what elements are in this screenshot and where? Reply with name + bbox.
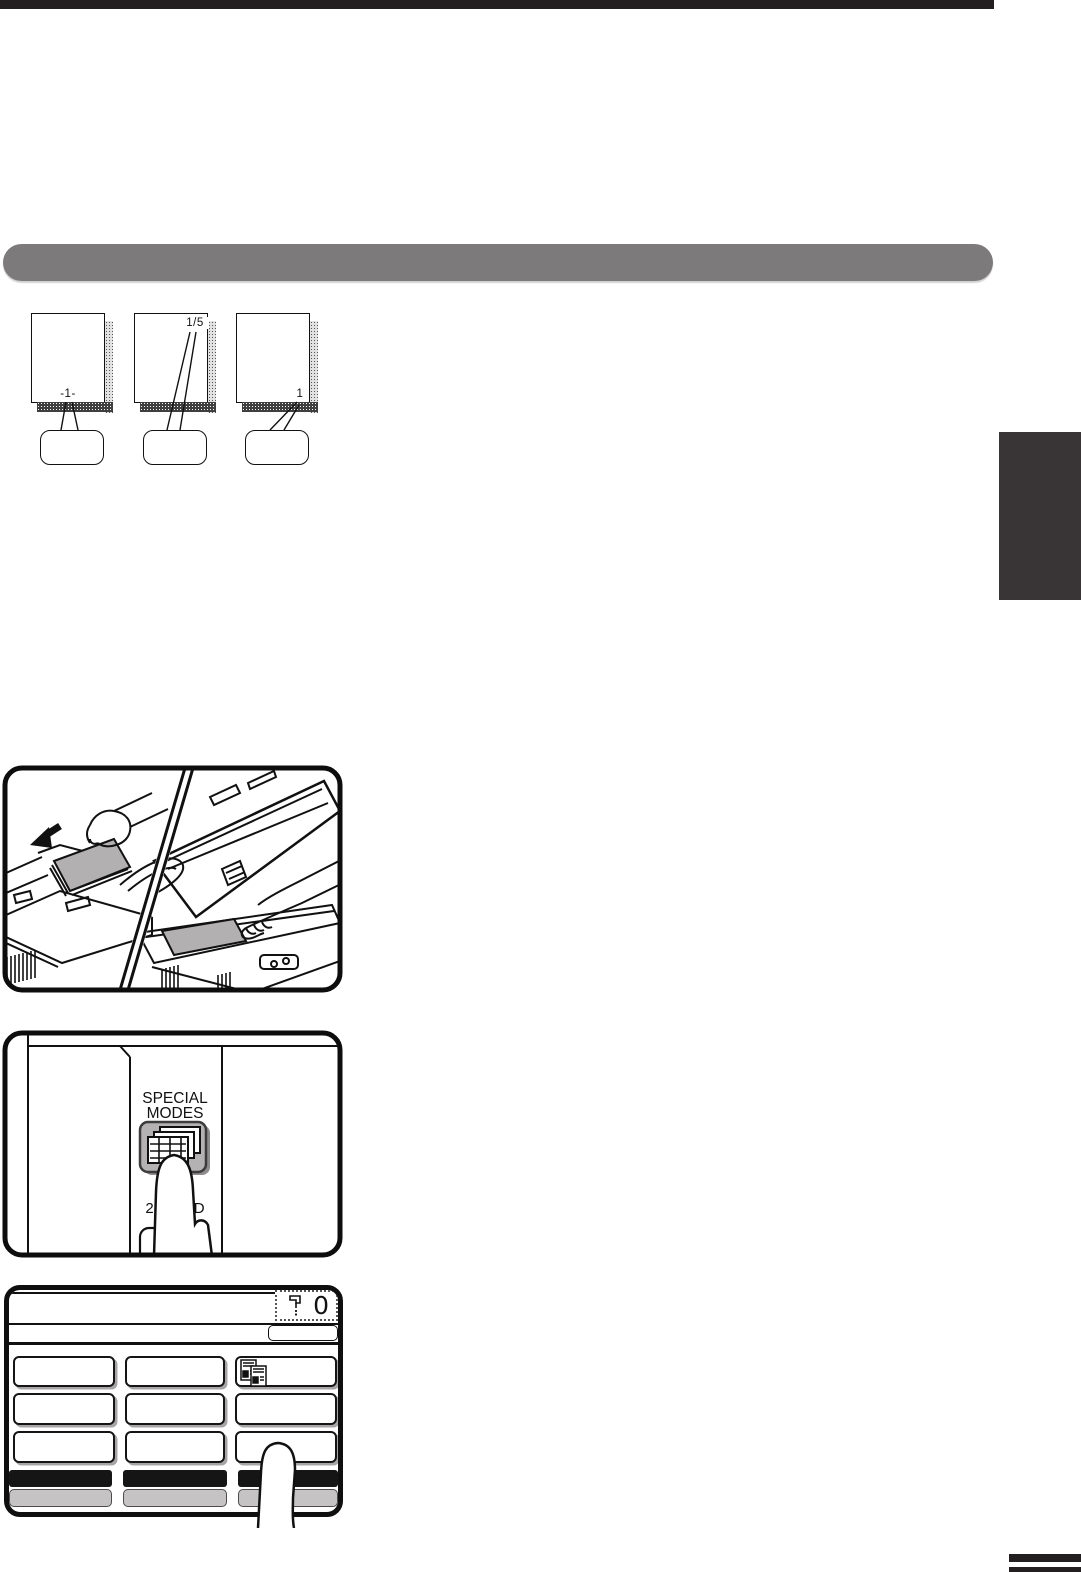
footer-rule-2: [1009, 1567, 1081, 1572]
dual-page-copy-icon: [240, 1359, 268, 1387]
touch-tab-bar-1: [9, 1470, 112, 1487]
touch-key-r2c2: [125, 1393, 225, 1425]
special-modes-label-line2: MODES: [147, 1105, 204, 1122]
touch-tab-bar-2: [123, 1470, 227, 1487]
top-rule: [0, 0, 994, 9]
callout-box-2: [143, 430, 207, 465]
copy-count-box: 0: [275, 1290, 338, 1321]
footer-rule-1: [1009, 1554, 1081, 1562]
touch-key-r1c1: [13, 1356, 115, 1387]
figure-special-modes-key: SPECIAL MODES 2-SIDED COPY: [2, 1030, 343, 1258]
copy-count-value: 0: [313, 1293, 329, 1318]
figure-originals: [2, 765, 343, 993]
touch-panel-line-b: [9, 1342, 338, 1345]
feed-direction-arrow-icon: [30, 826, 60, 848]
touch-key-r1c2: [125, 1356, 225, 1387]
callout-box-3: [245, 430, 309, 465]
document-glass-drawing: [138, 771, 343, 993]
touch-key-r3c2: [125, 1431, 225, 1463]
callout-box-1: [40, 430, 104, 465]
touch-key-r3c1: [13, 1431, 115, 1463]
section-tab: [999, 432, 1081, 600]
copy-counter-icon: [289, 1294, 303, 1318]
touch-panel-right-key: [268, 1325, 338, 1341]
touch-soft-key-2: [123, 1489, 227, 1507]
section-header-bar: [3, 244, 993, 281]
touch-key-r1c3: [235, 1356, 337, 1387]
touch-soft-key-1: [9, 1489, 112, 1507]
touch-key-r2c3: [235, 1393, 337, 1425]
finger-pointer-touch: [248, 1428, 312, 1528]
touch-key-r2c1: [13, 1393, 115, 1425]
